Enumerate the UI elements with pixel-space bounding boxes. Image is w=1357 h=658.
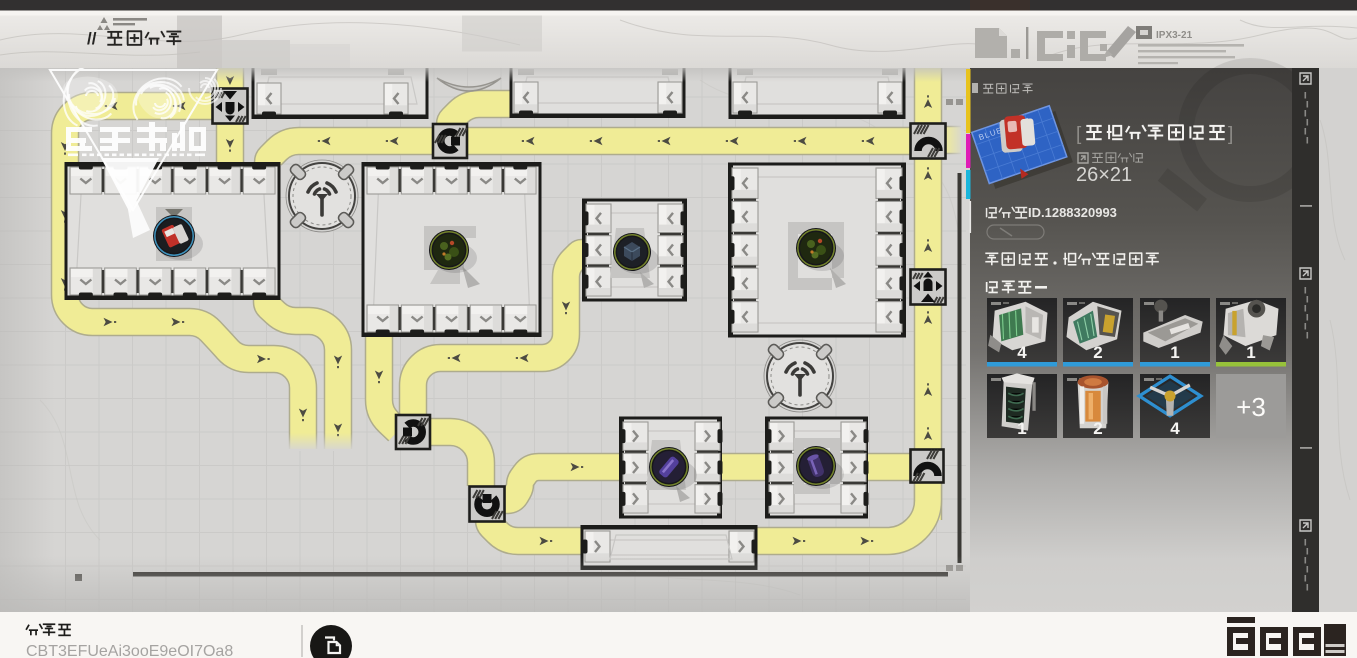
svg-text:4: 4 xyxy=(1017,343,1027,362)
svg-text:[: [ xyxy=(1076,124,1082,145)
svg-text://: // xyxy=(87,29,97,48)
svg-text:ID.1288320993: ID.1288320993 xyxy=(1028,205,1117,220)
svg-text:1: 1 xyxy=(1246,343,1255,362)
svg-text:CBT3EFUeAi3ooE9eOI7Oa8: CBT3EFUeAi3ooE9eOI7Oa8 xyxy=(26,643,233,658)
svg-text:]: ] xyxy=(1228,124,1233,145)
svg-text:26×21: 26×21 xyxy=(1076,164,1132,186)
svg-text:1: 1 xyxy=(1017,419,1026,438)
svg-text:IPX3-21: IPX3-21 xyxy=(1156,30,1193,41)
svg-text:4: 4 xyxy=(1170,419,1180,438)
svg-text:2: 2 xyxy=(1093,343,1102,362)
svg-text:+3: +3 xyxy=(1236,392,1266,422)
svg-text:2: 2 xyxy=(1093,419,1102,438)
svg-text:1: 1 xyxy=(1170,343,1179,362)
